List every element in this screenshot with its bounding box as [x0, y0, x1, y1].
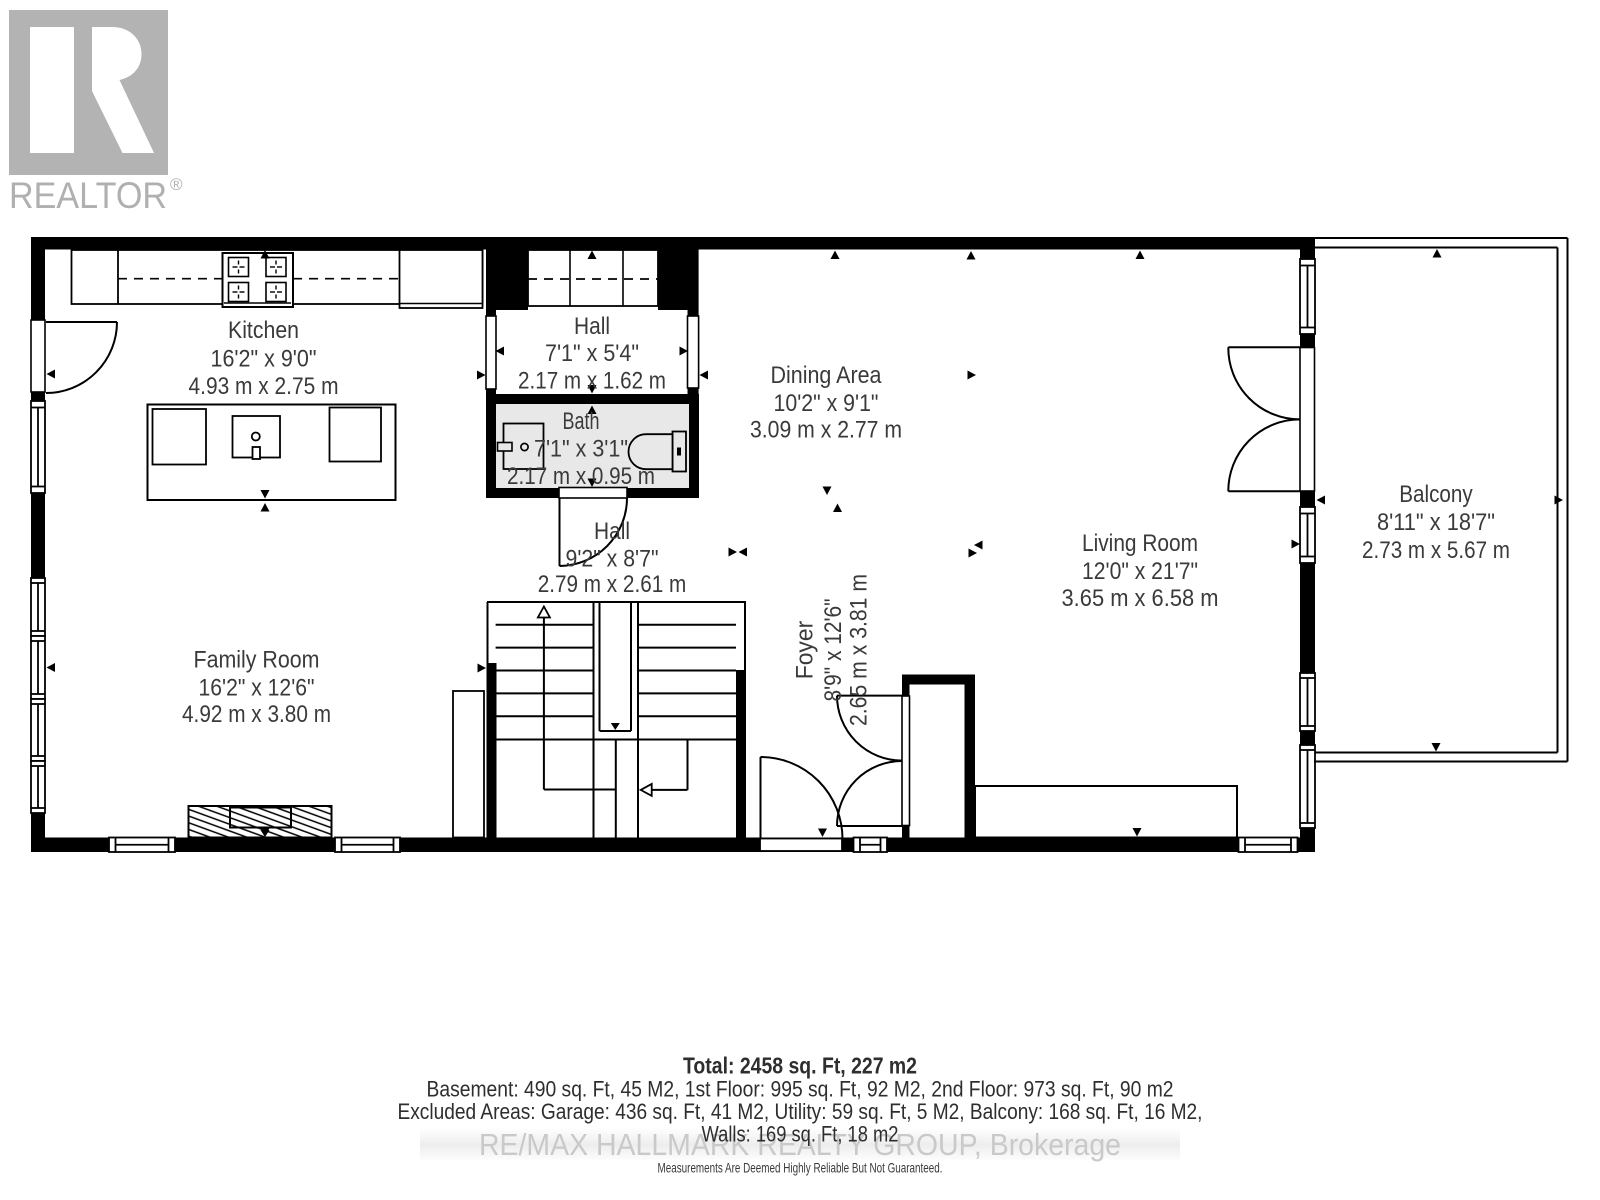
- svg-text:9'2" x 8'7": 9'2" x 8'7": [566, 546, 659, 573]
- svg-text:2.79 m x 2.61 m: 2.79 m x 2.61 m: [538, 571, 687, 598]
- svg-text:7'1" x 5'4": 7'1" x 5'4": [545, 340, 639, 367]
- svg-text:Kitchen: Kitchen: [228, 317, 299, 344]
- svg-text:2.17 m x 1.62 m: 2.17 m x 1.62 m: [518, 368, 666, 395]
- svg-text:4.92 m x 3.80 m: 4.92 m x 3.80 m: [182, 701, 331, 728]
- svg-text:2.73 m x 5.67 m: 2.73 m x 5.67 m: [1362, 537, 1510, 564]
- svg-text:10'2" x 9'1": 10'2" x 9'1": [774, 390, 879, 417]
- svg-text:Dining Area: Dining Area: [771, 362, 883, 389]
- svg-text:Walls: 169 sq. Ft, 18 m2: Walls: 169 sq. Ft, 18 m2: [702, 1122, 899, 1147]
- svg-text:12'0" x 21'7": 12'0" x 21'7": [1082, 558, 1198, 585]
- svg-text:REALTOR: REALTOR: [9, 174, 167, 216]
- svg-text:Measurements Are Deemed Highly: Measurements Are Deemed Highly Reliable …: [658, 1161, 943, 1176]
- svg-text:Family Room: Family Room: [194, 647, 320, 674]
- svg-text:®: ®: [170, 175, 183, 194]
- svg-text:3.09 m x 2.77 m: 3.09 m x 2.77 m: [750, 417, 902, 444]
- svg-text:Total: 2458 sq. Ft, 227 m2: Total: 2458 sq. Ft, 227 m2: [683, 1053, 917, 1079]
- svg-text:8'9" x 12'6": 8'9" x 12'6": [820, 599, 847, 702]
- svg-text:16'2" x 12'6": 16'2" x 12'6": [199, 675, 315, 702]
- svg-text:2.65 m x 3.81 m: 2.65 m x 3.81 m: [846, 574, 873, 726]
- svg-text:3.65 m x 6.58 m: 3.65 m x 6.58 m: [1062, 585, 1219, 612]
- svg-text:8'11" x 18'7": 8'11" x 18'7": [1377, 509, 1495, 536]
- svg-text:Balcony: Balcony: [1399, 481, 1473, 508]
- svg-text:Bath: Bath: [563, 408, 600, 435]
- svg-text:Living Room: Living Room: [1082, 530, 1198, 557]
- svg-text:16'2" x 9'0": 16'2" x 9'0": [211, 346, 317, 373]
- svg-text:Basement: 490 sq. Ft, 45 M2, 1: Basement: 490 sq. Ft, 45 M2, 1st Floor: …: [427, 1077, 1174, 1102]
- svg-text:4.93 m x 2.75 m: 4.93 m x 2.75 m: [189, 373, 339, 400]
- svg-text:Excluded Areas: Garage: 436 sq: Excluded Areas: Garage: 436 sq. Ft, 41 M…: [398, 1099, 1203, 1124]
- svg-text:Hall: Hall: [574, 313, 610, 340]
- svg-text:2.17 m x 0.95 m: 2.17 m x 0.95 m: [507, 463, 655, 490]
- svg-text:Hall: Hall: [594, 518, 630, 545]
- svg-text:Foyer: Foyer: [792, 621, 819, 680]
- svg-text:7'1" x 3'1": 7'1" x 3'1": [534, 436, 628, 463]
